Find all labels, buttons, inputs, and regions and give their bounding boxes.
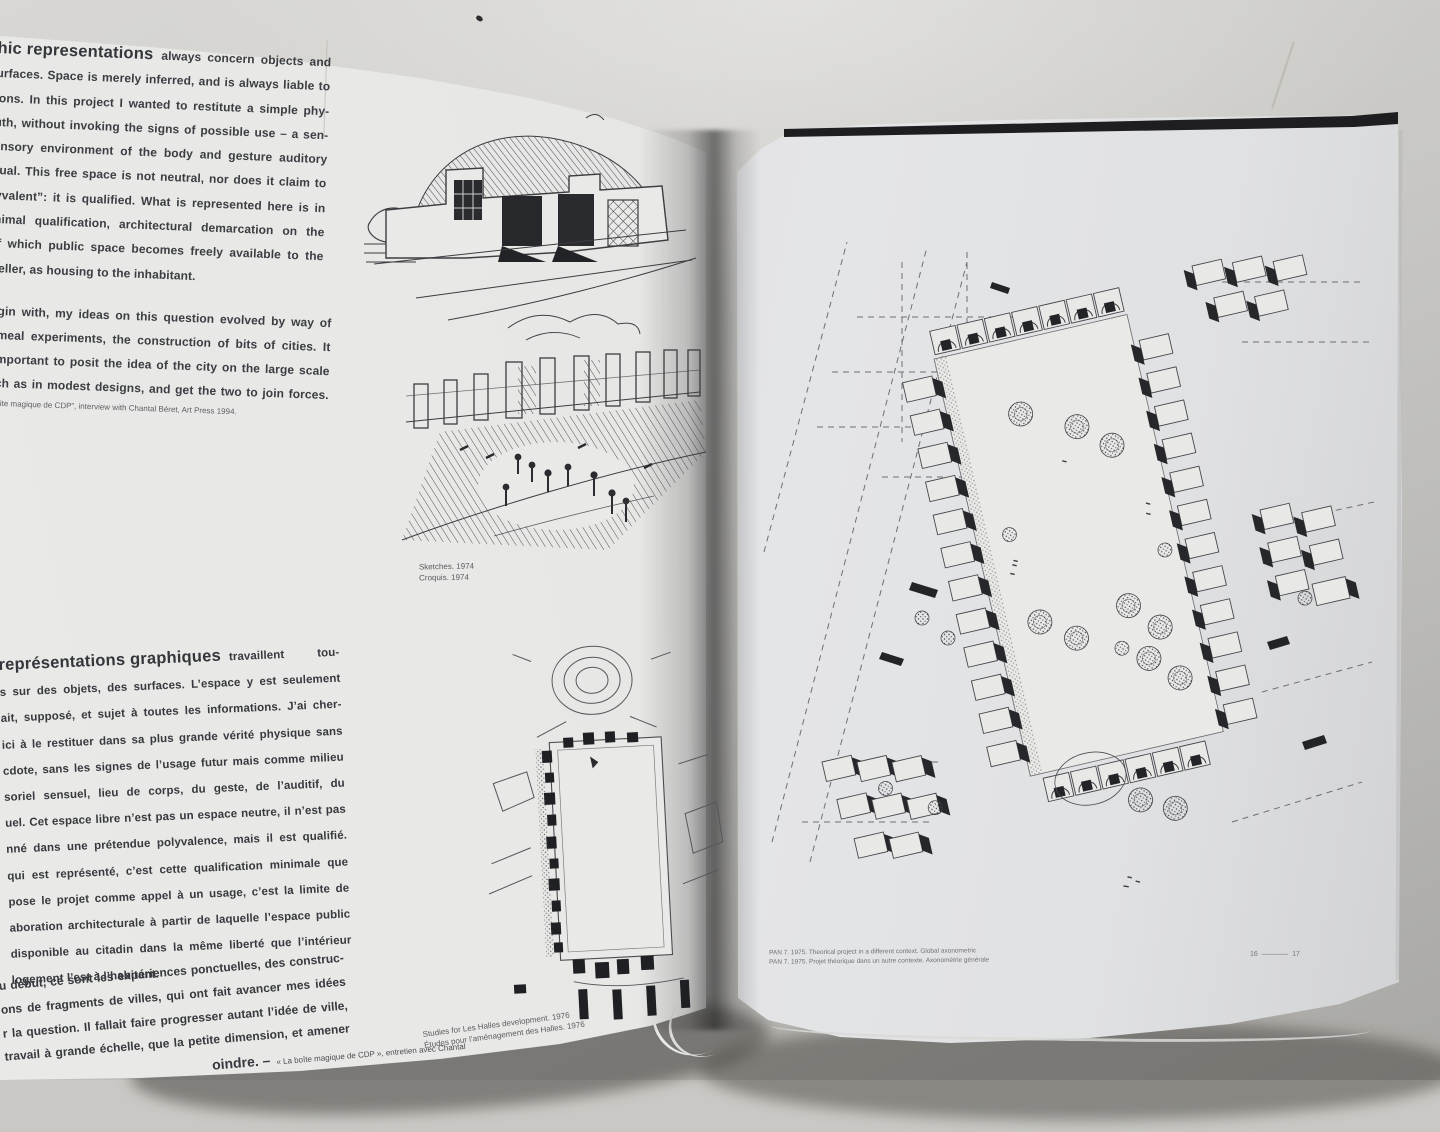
plaza-sketch-drawing — [398, 300, 713, 558]
sketches-caption-fr: Croquis. 1974 — [419, 572, 474, 584]
sketches-caption: Sketches. 1974 Croquis. 1974 — [419, 561, 475, 584]
english-intro-paragraph: hic representations always concern objec… — [0, 36, 332, 293]
page-number-left: 16 — [1250, 950, 1258, 958]
axonometric-drawing — [762, 222, 1380, 950]
page-number-right: 17 — [1292, 950, 1300, 958]
english-paragraph2-lines: gin with, my ideas on this question evol… — [0, 299, 332, 407]
french-intro-paragraph: représentations graphiques travaillent t… — [0, 638, 353, 995]
french-lastline-lead: oindre. – — [211, 1049, 271, 1077]
page-numbers: 16 17 — [1250, 950, 1300, 958]
french-paragraph-lines: s sur des objets, des surfaces. L’espace… — [0, 666, 352, 968]
english-second-paragraph: gin with, my ideas on this question evol… — [0, 299, 332, 407]
english-paragraph-lines: urfaces. Space is merely inferred, and i… — [0, 61, 331, 269]
les-halles-plan-drawing — [465, 622, 738, 1043]
page-number-rule — [1262, 954, 1289, 955]
